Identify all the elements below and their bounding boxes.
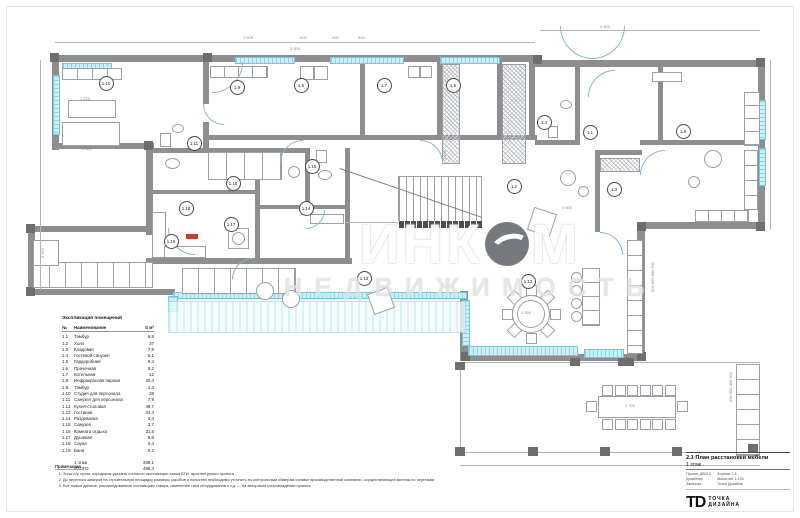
wall	[152, 190, 258, 194]
furniture	[736, 364, 760, 456]
dimension-label: 1 500	[562, 205, 572, 210]
terrace-column	[528, 447, 538, 456]
terrace-chair	[640, 385, 651, 396]
fixture	[420, 66, 432, 78]
wall	[640, 140, 761, 145]
fixture	[314, 66, 328, 80]
sink	[560, 100, 572, 109]
armchair	[527, 207, 557, 237]
furniture	[208, 152, 282, 180]
terrace-chair	[627, 419, 638, 430]
window-strip	[53, 75, 60, 135]
room-name: Баня	[74, 448, 138, 454]
terrace-chair	[665, 385, 676, 396]
meta-item: Точка Дизайна	[717, 482, 744, 487]
furniture	[62, 68, 122, 80]
meta-item: Заказчик	[686, 482, 711, 487]
wall	[535, 140, 580, 145]
sheet-title: 2.1 План расстановки мебели	[686, 455, 790, 462]
plant	[578, 186, 589, 197]
window-strip	[584, 349, 624, 358]
door-swing	[640, 150, 665, 175]
studio-name: ТОЧКА ДИЗАЙНА	[708, 497, 740, 508]
room-area: 5,2	[138, 448, 154, 454]
wall	[28, 289, 175, 295]
studio-name-line2: ДИЗАЙНА	[708, 502, 740, 508]
terrace-line	[345, 222, 401, 223]
drawing-sheet: 1.11.21.31.41.51.61.71.81.91.101.111.121…	[0, 0, 800, 518]
terrace-column	[600, 447, 610, 456]
dining-chair	[550, 309, 561, 320]
plant	[688, 176, 700, 188]
wall-pier	[756, 58, 765, 67]
sink	[172, 124, 184, 133]
terrace-line	[460, 362, 461, 453]
door-swing	[592, 26, 625, 59]
wall	[575, 67, 580, 140]
wall	[360, 62, 365, 140]
window-strip	[759, 148, 766, 186]
room-number-bubble: 1.16	[226, 176, 241, 191]
wall-pier	[637, 222, 646, 231]
terrace-chair	[665, 419, 676, 430]
deck-band	[168, 301, 466, 333]
wall-pier	[26, 287, 35, 296]
window-strip	[330, 57, 404, 64]
room-number-bubble: 1.15	[305, 159, 320, 174]
wall-pier	[756, 222, 765, 231]
legend-col-no: №	[62, 325, 74, 331]
terrace-column	[672, 447, 682, 456]
wall	[529, 62, 535, 140]
room-number-bubble: 1.11	[187, 136, 202, 151]
wardrobe-shelving	[600, 158, 640, 172]
room-number-bubble: 1.3	[607, 182, 622, 197]
furniture	[68, 100, 116, 118]
studio-brand: ТD ТОЧКА ДИЗАЙНА	[686, 494, 790, 512]
wall	[52, 55, 212, 62]
room-no: 1.19	[62, 448, 74, 454]
dimension-line	[770, 60, 771, 230]
dining-chair	[502, 309, 513, 320]
wall	[345, 148, 350, 263]
furniture	[627, 240, 643, 354]
bar-stool	[571, 311, 582, 322]
furniture	[598, 396, 676, 418]
room-number-bubble: 1.13	[357, 271, 372, 286]
furniture	[744, 92, 760, 146]
notes: Примечания Зоны с/у, кухни, коридоров ук…	[55, 464, 455, 489]
terrace-column	[570, 358, 580, 366]
wall-pier	[533, 55, 542, 64]
legend-row: 1.19Баня5,2	[62, 448, 154, 454]
dimension-label: 400	[332, 35, 339, 40]
furniture	[582, 268, 600, 326]
door-swing	[280, 140, 303, 163]
notes-list: Зоны с/у, кухни, коридоров указаны согла…	[55, 472, 455, 488]
dimension-label: 1 390	[521, 310, 531, 315]
room-number-bubble: 1.9	[230, 80, 245, 95]
wall-pier	[26, 224, 35, 233]
wall	[535, 60, 765, 67]
plant	[282, 290, 300, 308]
plant	[256, 282, 274, 300]
terrace-column	[455, 447, 465, 456]
terrace-chair	[627, 385, 638, 396]
meta-left: Проект ДВ010ДизайнерЗаказчик	[686, 472, 711, 487]
note-item: Все новые данные, рекомендованные постав…	[63, 484, 455, 489]
plant	[704, 150, 722, 168]
dimension-label: 2 700	[625, 403, 635, 408]
furniture	[744, 150, 758, 210]
title-block: 2.1 План расстановки мебели 1 этаж Проек…	[686, 452, 790, 512]
room-number-bubble: 1.12	[521, 274, 536, 289]
sink	[165, 158, 180, 169]
dimension-label: 4 500	[600, 24, 610, 29]
furniture	[695, 210, 749, 222]
bar-stool	[571, 298, 582, 309]
title-block-meta: Проект ДВ010ДизайнерЗаказчик Формат 2.1М…	[686, 472, 790, 490]
dimension-label: 600 800 800 600	[650, 262, 655, 292]
room-number-bubble: 1.6	[294, 78, 309, 93]
terrace-chair	[640, 419, 651, 430]
wall	[637, 222, 765, 229]
stair-landing	[398, 221, 482, 228]
note-item: До переноса замеров на строительную площ…	[63, 478, 455, 483]
window-strip	[235, 57, 295, 64]
wall-pier	[50, 53, 59, 62]
wall-pier	[203, 53, 212, 62]
door-swing	[588, 70, 615, 97]
bar-stool	[571, 272, 582, 283]
dimension-label: 1 100	[442, 150, 447, 160]
terrace-chair	[602, 419, 613, 430]
legend-col-name: Наименование	[74, 325, 138, 331]
legend-header: № Наименование S м²	[62, 325, 154, 332]
terrace-column	[618, 358, 634, 366]
room-number-bubble: 1.17	[224, 217, 239, 232]
terrace-chair	[615, 419, 626, 430]
furniture	[62, 122, 120, 146]
terrace-chair	[586, 401, 597, 412]
wall	[595, 150, 642, 155]
dimension-label: 1 509	[243, 35, 253, 40]
terrace-chair	[652, 419, 663, 430]
wall	[28, 226, 152, 232]
room-number-bubble: 1.5	[446, 78, 461, 93]
meta-right: Формат 2.1Масштаб 1:100Точка Дизайна	[717, 472, 744, 487]
terrace-column	[455, 362, 465, 370]
dimension-label: 600	[300, 35, 307, 40]
dimension-label: 3 300	[290, 46, 300, 51]
dimension-label: 1 220	[80, 96, 90, 101]
legend-rows: 1.1Тамбур6,81.2Холл371.3Кладовая7,91.4Го…	[62, 334, 154, 454]
legend-col-area: S м²	[138, 325, 154, 331]
terrace-chair	[615, 385, 626, 396]
dimension-label: 500 900 400 900	[728, 372, 733, 402]
furniture	[33, 240, 59, 266]
door-swing	[600, 232, 623, 255]
dimension-line	[55, 42, 535, 43]
furniture	[652, 72, 682, 82]
wall	[203, 62, 209, 104]
room-number-bubble: 1.19	[164, 234, 179, 249]
dining-chair	[526, 333, 537, 344]
td-logo-icon: ТD	[686, 494, 705, 512]
room-legend: Экспликация помещений № Наименование S м…	[62, 316, 154, 473]
fixture	[408, 66, 420, 78]
dimension-label: 5 559	[40, 248, 45, 258]
dimension-label: 2 800	[82, 146, 92, 151]
notes-title: Примечания	[55, 464, 81, 470]
door-swing	[420, 140, 443, 163]
room-number-bubble: 1.18	[179, 201, 194, 216]
door-swing	[560, 26, 593, 59]
sheet-floor: 1 этаж	[686, 462, 790, 470]
room-number-bubble: 1.1	[583, 125, 598, 140]
window-strip	[468, 346, 578, 356]
room-number-bubble: 1.8	[676, 124, 691, 139]
wall-pier	[144, 141, 153, 150]
sink	[318, 170, 332, 180]
terrace-chair	[602, 385, 613, 396]
plant	[560, 170, 576, 186]
wardrobe-shelving	[502, 64, 526, 164]
room-number-bubble: 1.2	[507, 179, 522, 194]
legend-title: Экспликация помещений	[62, 316, 154, 321]
room-number-bubble: 1.7	[377, 78, 392, 93]
terrace-chair	[677, 401, 688, 412]
terrace-chair	[652, 385, 663, 396]
title-block-divider	[686, 452, 790, 453]
terrace-line	[460, 362, 760, 363]
room-number-bubble: 1.4	[537, 115, 552, 130]
window-strip	[759, 100, 766, 140]
wall	[207, 135, 537, 140]
room-number-bubble: 1.10	[99, 76, 114, 91]
dimension-label: 800	[358, 35, 365, 40]
window-strip	[440, 57, 500, 64]
plant	[288, 166, 300, 178]
fixture	[160, 133, 171, 147]
bar-stool	[571, 285, 582, 296]
room-number-bubble: 1.14	[299, 201, 314, 216]
